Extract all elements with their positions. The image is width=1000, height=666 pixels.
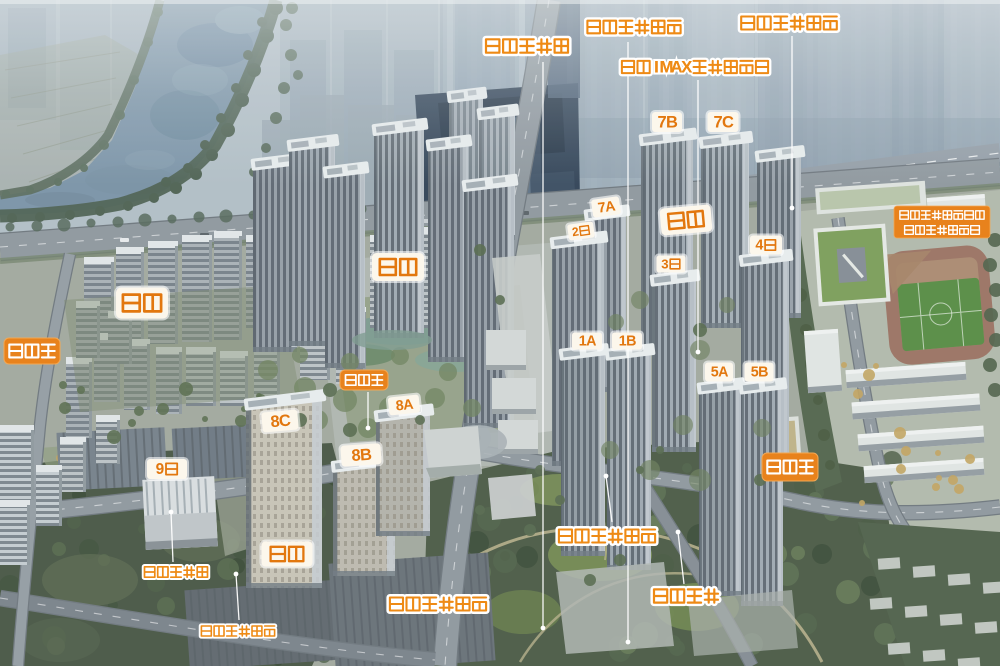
svg-text:B: B: [758, 365, 768, 381]
svg-text:4: 4: [755, 238, 763, 254]
svg-text:X: X: [681, 58, 693, 77]
svg-text:B: B: [666, 113, 678, 131]
svg-text:A: A: [586, 334, 596, 350]
svg-text:C: C: [722, 113, 734, 131]
svg-text:A: A: [402, 397, 414, 414]
svg-text:3: 3: [661, 256, 668, 271]
svg-text:9: 9: [156, 461, 165, 478]
svg-text:B: B: [359, 446, 372, 465]
svg-text:C: C: [278, 411, 292, 430]
svg-text:B: B: [626, 334, 636, 350]
svg-text:A: A: [718, 365, 728, 381]
svg-text:A: A: [604, 198, 616, 215]
svg-text:I: I: [654, 58, 659, 77]
